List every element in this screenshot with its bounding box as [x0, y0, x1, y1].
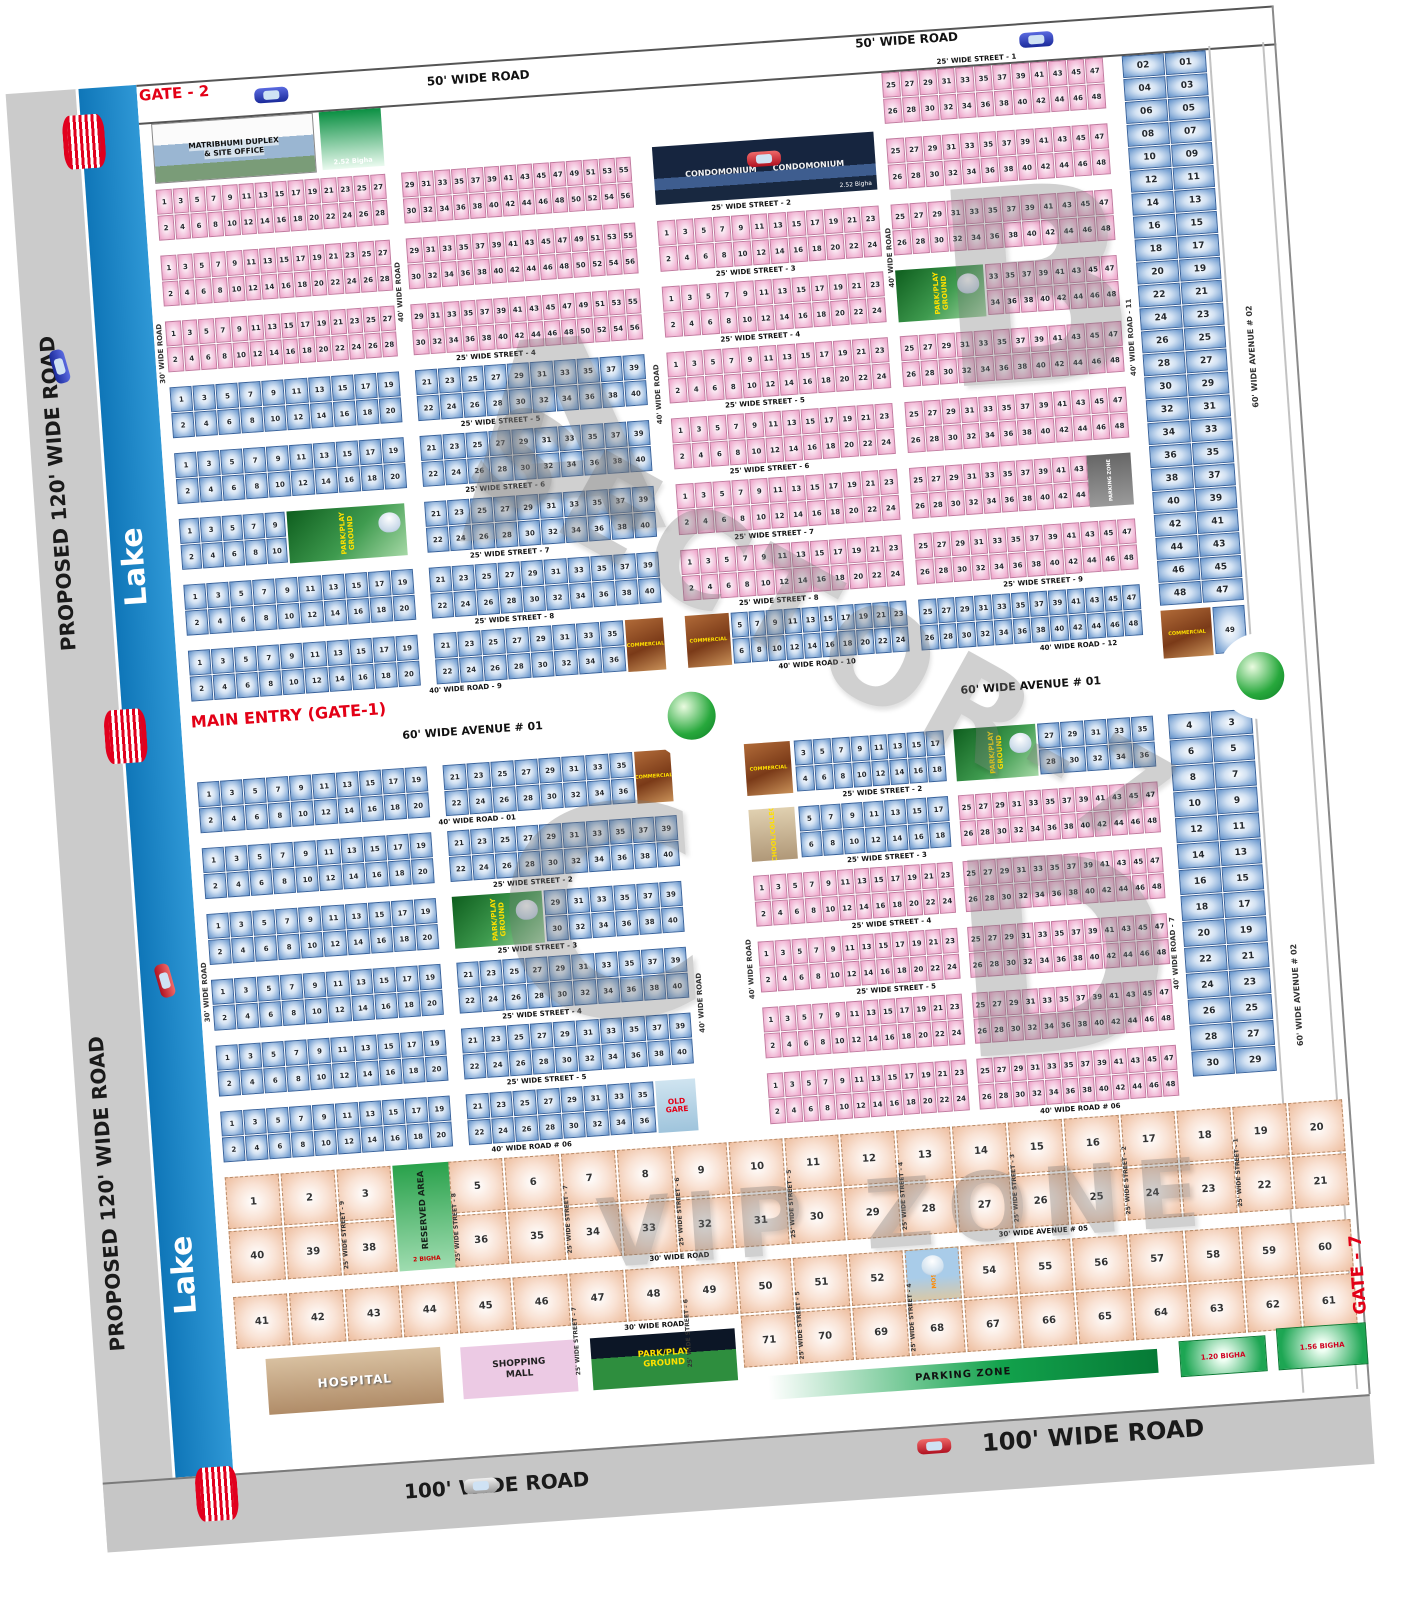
park-play-ground-image: PARK/PLAY GROUND	[452, 891, 545, 949]
plot: 12	[843, 961, 860, 987]
plot: 15	[280, 312, 297, 338]
plot: 56	[626, 314, 643, 340]
plot: 36	[999, 420, 1018, 446]
plot: 30	[1002, 950, 1019, 976]
plot: 16	[793, 302, 812, 328]
plot: 4	[222, 805, 246, 831]
plot: 23	[937, 862, 954, 888]
plot: 44	[1071, 481, 1090, 507]
plot: 26	[467, 457, 491, 483]
plot: 13	[773, 278, 792, 304]
plot: 43	[521, 229, 538, 255]
plot: 14	[356, 1060, 380, 1086]
road-label: 60' WIDE AVENUE # 01	[402, 719, 543, 742]
plot: 31	[1008, 791, 1025, 817]
plot: 21	[424, 500, 448, 526]
plot: 13	[787, 475, 806, 501]
plot: 23	[1180, 1161, 1238, 1217]
plot: 35	[508, 1208, 566, 1264]
lake-label: Lake	[164, 1235, 204, 1316]
plot: 6	[797, 1030, 814, 1056]
plot: 12	[319, 865, 343, 891]
plot: 43	[1057, 192, 1076, 218]
plot: 3	[689, 416, 708, 442]
plot: 34	[989, 553, 1008, 579]
plot-block: 21232527293133352224262830323436	[466, 1081, 657, 1146]
plot: 21	[865, 536, 884, 562]
plot: 34	[436, 195, 453, 221]
plot: 37	[467, 167, 484, 193]
plot: 2	[190, 675, 214, 701]
plot: 29	[553, 1021, 577, 1047]
plot: 67	[964, 1296, 1022, 1352]
plot: 36	[583, 449, 607, 475]
plot: 14	[775, 304, 794, 330]
plot: 16	[360, 796, 384, 822]
plot: 28	[986, 951, 1003, 977]
plot: 33	[985, 263, 1002, 289]
plot: 31	[418, 170, 435, 196]
plot: 06	[1125, 99, 1168, 124]
plot: 30	[530, 651, 555, 678]
plot: 38	[601, 382, 625, 408]
plot: 16	[807, 500, 826, 526]
plot: 6	[705, 375, 724, 401]
plot: 37	[608, 487, 632, 513]
plot: 21	[920, 863, 937, 889]
plot: 33	[567, 557, 591, 583]
plot-block: 2527293133353739414326283032343638404244	[909, 456, 1090, 520]
plot: 10	[852, 761, 872, 787]
plot: 3	[779, 1005, 796, 1031]
plot: 35	[581, 423, 605, 449]
plot: 22	[1236, 1157, 1294, 1213]
plot: 42	[511, 322, 528, 348]
plot: 12	[244, 275, 261, 301]
plot: 14	[803, 633, 821, 659]
plot: 8	[833, 763, 853, 789]
plot: 8	[259, 670, 283, 696]
image-label: MALL	[506, 1368, 534, 1381]
plot: 17	[896, 997, 913, 1023]
plot: 26	[915, 559, 934, 585]
plot: 17	[391, 900, 415, 926]
plot: 29	[539, 823, 563, 849]
plot: 45	[1085, 322, 1104, 348]
plot: 35	[1001, 262, 1018, 288]
car-icon	[917, 1437, 952, 1454]
plot: 31	[962, 463, 981, 489]
plot: 14	[360, 1126, 384, 1152]
plot: 9	[745, 412, 764, 438]
plot: 34	[1109, 743, 1133, 770]
plot: 18	[807, 235, 826, 261]
plot: 16	[812, 566, 831, 592]
plot: 35	[576, 357, 600, 383]
plot: 27	[988, 991, 1005, 1017]
plot: 38	[999, 156, 1018, 182]
plot: 37	[472, 233, 489, 259]
plot: 12	[337, 1128, 361, 1154]
plot: 18	[830, 564, 849, 590]
plot: 23	[457, 630, 482, 657]
plot: 32	[573, 979, 597, 1005]
plot: 45	[1125, 783, 1142, 809]
plot: 6	[710, 441, 729, 467]
image-label: PARKING ZONE	[1106, 459, 1115, 501]
plot: 29	[1010, 1055, 1027, 1081]
car-icon	[1019, 31, 1054, 48]
plot: 44	[1050, 86, 1069, 112]
plot-block: 2931333537394143454749515355303234363840…	[406, 222, 639, 290]
plot: 41	[1039, 193, 1058, 219]
plot: 33	[562, 491, 586, 517]
plot: 19	[391, 569, 415, 595]
plot: 35	[974, 65, 993, 91]
plot: 24	[343, 268, 360, 294]
plot: 12	[249, 341, 266, 367]
plot: 15	[819, 605, 837, 631]
plot: 7	[736, 545, 755, 571]
plot: 8	[282, 999, 306, 1025]
plot-row: 4847	[1159, 578, 1244, 606]
image-label: 2.52 Bigha	[839, 180, 872, 189]
plot-block: 135791113151719212324681012141618202224	[662, 271, 887, 338]
plot: 9	[303, 972, 327, 998]
plot-block: 57911131517192123681012141618202224	[731, 600, 910, 664]
plot: 31	[562, 821, 586, 847]
plot: 30	[518, 520, 542, 546]
plot: 12	[752, 239, 771, 265]
plot-block: 1357911131517192123252724681012141618202…	[156, 174, 389, 242]
plot: 23	[443, 433, 467, 459]
plot: 8	[737, 571, 756, 597]
plot: 13	[358, 1100, 382, 1126]
plot: 4	[687, 376, 706, 402]
plot: 4	[776, 965, 793, 991]
plot: 40	[1036, 418, 1055, 444]
plot: 36	[578, 383, 602, 409]
plot: 19	[304, 178, 321, 204]
plot-block: 135791113151719212324681012141618202224	[675, 469, 900, 536]
plot: 39	[483, 166, 500, 192]
plot: 25	[958, 794, 975, 820]
plot: 46	[1105, 611, 1124, 637]
plot: 32	[976, 620, 995, 646]
plot: 36	[452, 194, 469, 220]
plot: 33	[590, 886, 614, 912]
plot: 7	[243, 447, 267, 473]
plot: 6	[217, 409, 241, 435]
plot: 1	[675, 483, 694, 509]
plot: 38	[994, 90, 1013, 116]
plot: 16	[876, 958, 893, 984]
plot: 19	[418, 964, 442, 990]
plot: 7	[214, 317, 231, 343]
plot: 48	[1096, 215, 1115, 241]
plot: 47	[1122, 584, 1141, 610]
image-label: GARE	[665, 1105, 688, 1114]
plot: 35	[1046, 854, 1063, 880]
plot: 29	[538, 757, 563, 784]
plot: 19	[395, 635, 419, 661]
plot: 40	[633, 512, 657, 538]
plot: 42	[1036, 153, 1055, 179]
plot: 22	[327, 269, 344, 295]
plot: 27	[927, 466, 946, 492]
plot: 19	[404, 766, 428, 792]
plot: 12	[756, 305, 775, 331]
plot-block: 2527293133353739414345472628303234363840…	[972, 979, 1175, 1045]
plot: 45	[457, 1278, 515, 1334]
roundabout	[646, 670, 738, 762]
plot: 43	[1068, 257, 1085, 283]
plot: 3	[680, 284, 699, 310]
plot: 19	[377, 371, 401, 397]
plot: 21	[466, 1093, 490, 1120]
plot: 21	[872, 602, 890, 628]
plot: 24	[1139, 306, 1182, 331]
plot: 2	[668, 377, 687, 403]
plot: 35	[622, 1016, 646, 1042]
plot: 44	[1087, 613, 1106, 639]
plot: 15	[363, 835, 387, 861]
plot: 12	[328, 996, 352, 1022]
plot: 56	[621, 248, 638, 274]
plot: 4	[213, 673, 237, 699]
plot: 38	[1060, 813, 1077, 839]
plot: 31	[422, 236, 439, 262]
plot: 9	[294, 840, 318, 866]
plot: 43	[1070, 456, 1089, 482]
image-label: COMMERCIAL	[749, 764, 787, 773]
plot: 11	[312, 773, 336, 799]
plot: 6	[696, 243, 715, 269]
plot: 47	[549, 161, 566, 187]
plot: 39	[1093, 1049, 1110, 1075]
plot: 33	[1190, 417, 1233, 442]
plot: 26	[504, 984, 528, 1010]
plot: 32	[554, 650, 579, 677]
plot: 48	[551, 187, 568, 213]
plot: 10	[296, 866, 320, 892]
plot: 7	[257, 644, 281, 670]
plot: 41	[1110, 1048, 1127, 1074]
plot: 10	[756, 570, 775, 596]
plot: 35	[609, 752, 634, 779]
plot: 13	[867, 1065, 884, 1091]
plot: 25	[967, 926, 984, 952]
plot: 29	[560, 1086, 584, 1113]
plot: 45	[1084, 256, 1101, 282]
plot: 3	[172, 188, 189, 214]
plot: 4	[245, 1134, 269, 1160]
plot: 1	[160, 255, 177, 281]
plot: 30	[993, 818, 1010, 844]
plot: 38	[606, 448, 630, 474]
plot: 43	[1113, 850, 1130, 876]
plot: 3	[225, 845, 249, 871]
car-icon	[463, 1477, 498, 1494]
plot: 18	[1180, 893, 1223, 921]
plot: 39	[1034, 458, 1053, 484]
plot: 10	[291, 800, 315, 826]
plot: 49	[566, 160, 583, 186]
plot: 6	[245, 804, 269, 830]
plot: 46	[1078, 216, 1097, 242]
plot: 33	[439, 235, 456, 261]
plot: 46	[1101, 546, 1120, 572]
plot: 38	[1078, 1077, 1095, 1103]
plot: 17	[1177, 234, 1220, 259]
plot: 18	[812, 301, 831, 327]
plot: 9	[754, 544, 773, 570]
plot: 28	[1143, 352, 1186, 377]
car-icon	[747, 150, 782, 167]
plot: 35	[1130, 716, 1154, 743]
plot: 7	[1214, 761, 1257, 789]
plot: 30	[1012, 1081, 1029, 1107]
plot: 21	[1226, 942, 1269, 970]
plot: 39	[631, 486, 655, 512]
plot: 17	[824, 473, 843, 499]
plot: 6	[195, 278, 212, 304]
plot: 36	[976, 91, 995, 117]
plot: 16	[1133, 214, 1176, 239]
plot: 23	[946, 994, 963, 1020]
plot: 56	[617, 183, 634, 209]
plot: 45	[1103, 585, 1122, 611]
plot: 20	[844, 497, 863, 523]
plot: 46	[1087, 348, 1106, 374]
plot: 31	[583, 1085, 607, 1112]
plot: 25	[490, 760, 515, 787]
plot: 17	[395, 965, 419, 991]
plot: 41	[1062, 522, 1081, 548]
plot: 16	[277, 272, 294, 298]
plot: 44	[1073, 415, 1092, 441]
plot: 43	[1108, 784, 1125, 810]
plot: 34	[440, 261, 457, 287]
plot: 14	[864, 1025, 881, 1051]
plot: 5	[812, 738, 832, 764]
plot: 35	[1191, 440, 1234, 465]
plot: 45	[1139, 980, 1156, 1006]
plot: 13	[335, 771, 359, 797]
plot: 51	[582, 159, 599, 185]
plot: 15	[275, 247, 292, 273]
plot: 5	[193, 252, 210, 278]
plot: 26	[883, 98, 902, 124]
plot: 7	[239, 381, 263, 407]
plot: 7	[820, 804, 842, 830]
plot: 17	[925, 730, 945, 756]
plot: 27	[923, 400, 942, 426]
plot: 22	[926, 955, 943, 981]
plot: 29	[991, 792, 1008, 818]
plot: 1	[657, 220, 676, 246]
plot: 33	[585, 820, 609, 846]
plot: 7	[285, 1039, 309, 1065]
plot: 31	[941, 134, 960, 160]
plot: 23	[875, 403, 894, 429]
plot: 33	[980, 462, 999, 488]
plot: 25	[1068, 1169, 1126, 1225]
plot: 1	[188, 649, 212, 675]
plot: 33	[558, 425, 582, 451]
plot: 18	[927, 756, 947, 782]
plot: 12	[286, 404, 310, 430]
plot: 11	[784, 608, 802, 634]
plot: 19	[838, 406, 857, 432]
plot: 17	[354, 373, 378, 399]
plot: 1	[671, 417, 690, 443]
plot: 32	[1028, 1080, 1045, 1106]
plot: 31	[1017, 922, 1034, 948]
plot: 34	[980, 422, 999, 448]
plot: 12	[300, 601, 324, 627]
plot: 21	[852, 338, 871, 364]
plot-block: 2931333537394143454749515355303234363840…	[410, 288, 643, 356]
plot: 15	[791, 276, 810, 302]
plot: 29	[406, 237, 423, 263]
plot: 2	[204, 873, 228, 899]
plot: 20	[914, 1022, 931, 1048]
plot: 20	[429, 1121, 453, 1147]
plot: 14	[784, 435, 803, 461]
plot: 41	[1053, 391, 1072, 417]
plot: 38	[1017, 419, 1036, 445]
plot: 39	[1195, 486, 1238, 511]
plot: 12	[761, 371, 780, 397]
plot: 7	[817, 1069, 834, 1095]
plot: 31	[562, 755, 587, 782]
plot: 39	[654, 815, 678, 841]
plot: 14	[793, 567, 812, 593]
plot: 71	[740, 1312, 798, 1368]
plot: 60	[1296, 1219, 1354, 1275]
plot: 1	[156, 189, 173, 215]
plot: 46	[1136, 940, 1153, 966]
plot: 41	[1052, 457, 1071, 483]
plot: 39	[664, 947, 688, 973]
plot: 08	[1127, 122, 1170, 147]
plot: 31	[732, 1192, 790, 1248]
plot: 28	[371, 200, 388, 226]
plot: 1	[758, 941, 775, 967]
plot: 12	[314, 799, 338, 825]
plot: 36	[624, 1042, 648, 1068]
plot: 9	[280, 643, 304, 669]
plot: 25	[353, 175, 370, 201]
plot: 17	[297, 311, 314, 337]
plot: 42	[1112, 1074, 1129, 1100]
plot: 36	[1013, 618, 1032, 644]
plot: 14	[351, 995, 375, 1021]
plot: 1	[206, 913, 230, 939]
plot: 29	[937, 332, 956, 358]
plot: 6	[714, 506, 733, 532]
plot: 31	[567, 887, 591, 913]
plot: 27	[489, 430, 513, 456]
plot: 53	[608, 289, 625, 315]
plot: 12	[1130, 168, 1173, 193]
plot: 24	[877, 429, 896, 455]
plot: 5	[694, 217, 713, 243]
plot: 26	[960, 820, 977, 846]
plot: 39	[488, 232, 505, 258]
plot: 7	[271, 842, 295, 868]
